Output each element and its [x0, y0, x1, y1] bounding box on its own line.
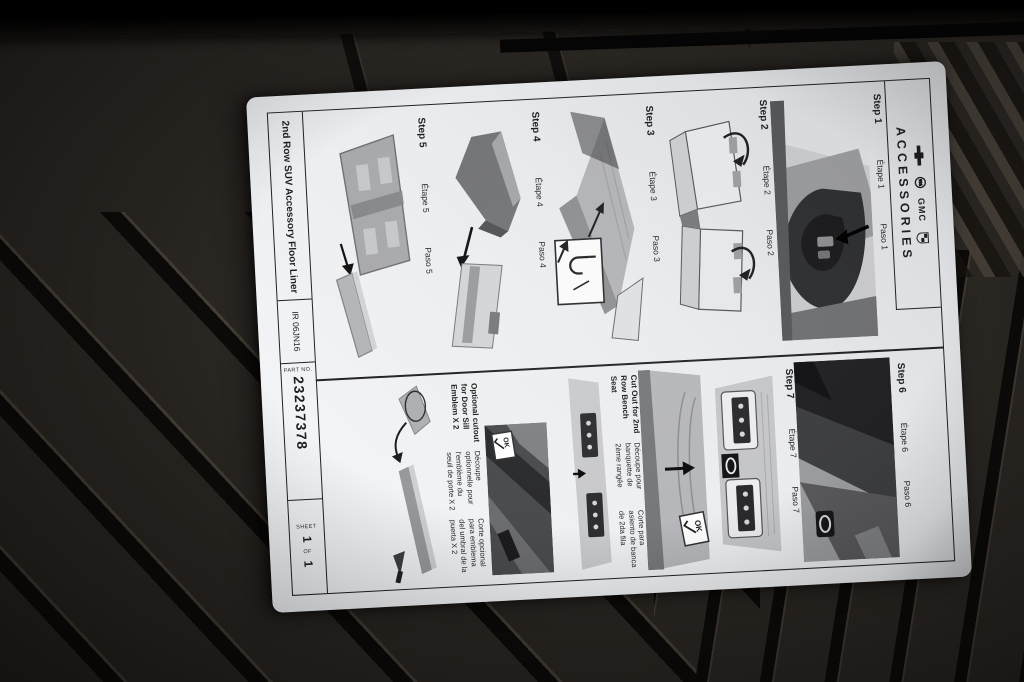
step-5-label-fr: Étape 5 — [420, 183, 433, 247]
step-2-figure — [656, 102, 764, 347]
sheet-number: 1 — [300, 533, 315, 546]
buick-emblem-icon — [914, 176, 927, 189]
brand-logo-row: GMC — [911, 144, 931, 244]
sheet-label: SHEET — [296, 523, 317, 530]
step-6-figure — [794, 357, 900, 562]
part-number-label: PART NO. — [284, 367, 313, 374]
step-4-panel: Step 4 Étape 4 Paso 4 — [428, 99, 554, 372]
step-3-label-fr: Étape 3 — [647, 171, 660, 235]
step-6-label-fr: Étape 6 — [899, 422, 912, 480]
door-sill-photo-figure: OK — [484, 422, 554, 575]
top-trim-bar — [0, 0, 1024, 38]
sheet-content: GMC ACCESSORIES Step 1 Étape 1 Pa — [302, 79, 954, 593]
bench-cutout-text-es: Corte para asiento de banca de 2da fila — [615, 510, 648, 571]
step-1-label-fr: Étape 1 — [875, 159, 888, 223]
bench-cutout-note: Cut Out for 2nd Row Bench Seat Découpe p… — [564, 365, 649, 580]
step-4-label-es: Paso 4 — [537, 241, 550, 305]
step-3-figure — [542, 108, 650, 353]
step-1-label: Step 1 — [871, 93, 885, 159]
step-2-label-fr: Étape 2 — [761, 165, 774, 229]
step-4-label-fr: Étape 4 — [534, 177, 547, 241]
instruction-sheet: GMC ACCESSORIES Step 1 Étape 1 Pa — [246, 61, 972, 613]
chevrolet-bowtie-icon — [913, 144, 924, 166]
ok-tag: OK — [679, 511, 708, 545]
step-7-panel: Step 7 Étape 7 Paso 7 — [637, 356, 804, 575]
step-5-label-es: Paso 5 — [423, 247, 436, 311]
of-label: OF — [303, 548, 312, 554]
sheet-total: 1 — [301, 557, 316, 570]
gmc-wordmark: GMC — [916, 198, 927, 222]
step-7-figure: OK — [638, 363, 788, 570]
step-3-label: Step 3 — [643, 105, 657, 171]
revision-code: IR 06JN16 — [278, 300, 315, 365]
door-sill-text-es: Corte opcional para emblema del umbral d… — [448, 518, 489, 580]
step-2-label-es: Paso 2 — [765, 229, 778, 293]
step-3-label-es: Paso 3 — [651, 235, 664, 299]
step-3-panel: Step 3 Étape 3 Paso 3 — [541, 93, 667, 366]
step-1-panel: Step 1 Étape 1 Paso 1 — [769, 81, 895, 354]
bench-cutout-text-en: Cut Out for 2nd Row Bench Seat — [608, 375, 641, 436]
door-sill-note: OK Optional cutout for Door Sill Emblem … — [382, 369, 556, 588]
step-6-label-es: Paso 6 — [902, 480, 915, 538]
step-6-panel: Step 6 Étape 6 Paso 6 — [793, 351, 916, 568]
ok-tag-2: OK — [492, 431, 516, 460]
door-sill-text-en: Optional cutout for Door Sill Emblem X 2 — [441, 383, 482, 445]
step-5-label: Step 5 — [415, 117, 429, 183]
part-number-cell: PART NO. 23237378 — [281, 362, 322, 501]
step-6-label: Step 6 — [895, 363, 909, 423]
cadillac-crest-icon — [916, 232, 930, 244]
top-trim-ridge — [500, 20, 1024, 53]
accessories-header: GMC ACCESSORIES — [884, 79, 941, 310]
sheet-number-cell: SHEET 1 OF 1 — [288, 499, 327, 595]
sheet-frame: GMC ACCESSORIES Step 1 Étape 1 Pa — [267, 78, 955, 596]
step-5-figure — [315, 120, 423, 365]
step-2-label: Step 2 — [757, 99, 771, 165]
step-4-label: Step 4 — [529, 111, 543, 177]
step-2-panel: Step 2 Étape 2 Paso 2 — [655, 87, 781, 360]
door-sill-text-fr: Découpe optionnelle pour l'emblème du se… — [444, 450, 485, 512]
door-sill-strip-figure — [383, 380, 449, 583]
photo-scene: GMC ACCESSORIES Step 1 Étape 1 Pa — [0, 0, 1024, 682]
step-1-label-es: Paso 1 — [878, 223, 891, 287]
part-number: 23237378 — [291, 376, 311, 451]
bench-cutout-text-fr: Découpe pour banquette de 2ème rangée — [612, 442, 645, 503]
step-1-figure — [770, 96, 878, 341]
step-5-panel: Step 5 Étape 5 Paso 5 — [314, 105, 440, 378]
step-4-figure — [428, 114, 536, 359]
